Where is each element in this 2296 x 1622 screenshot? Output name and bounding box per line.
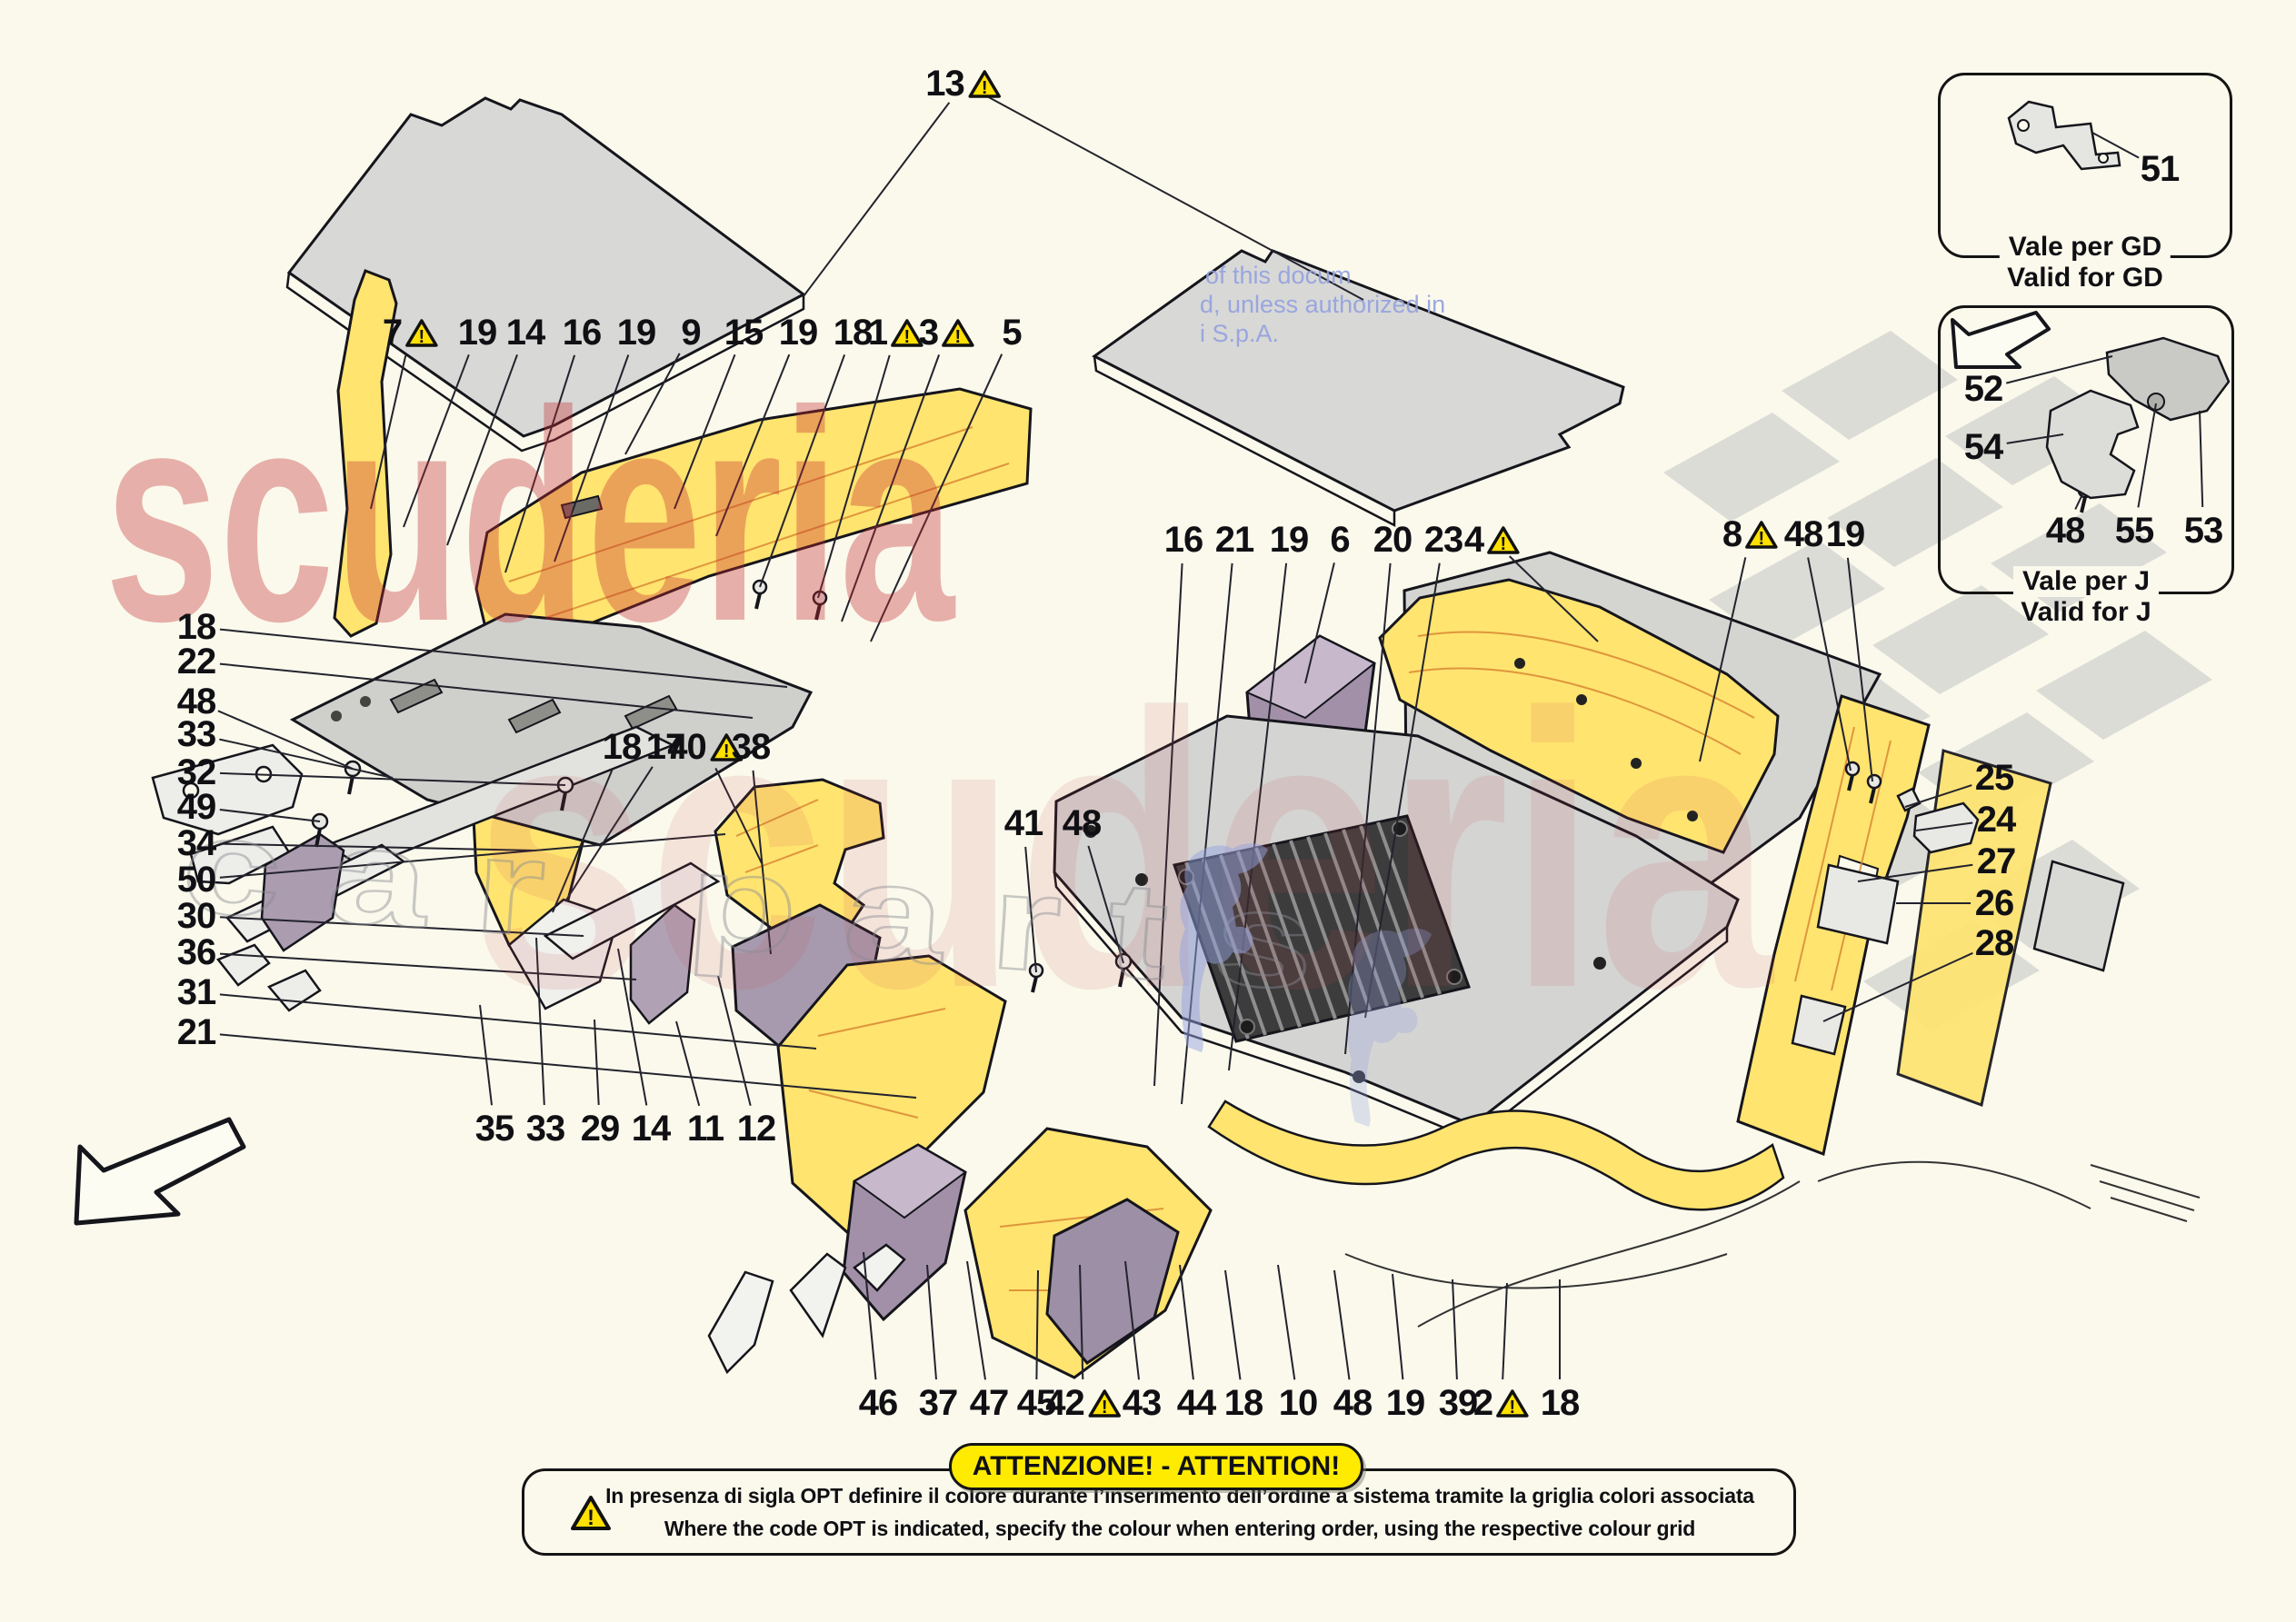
part-callout: 1! (868, 314, 924, 351)
part-callout: 18 (177, 609, 216, 645)
part-number: 33 (177, 716, 216, 752)
part-number: 48 (1063, 805, 1102, 841)
attention-badge: ATTENZIONE! - ATTENTION! (949, 1443, 1363, 1490)
part-callout: 36 (177, 934, 216, 970)
part-callout: 37 (919, 1385, 958, 1421)
warning-icon: ! (967, 69, 1002, 99)
part-callout: 42! (1045, 1385, 1122, 1421)
part-number: 43 (1123, 1385, 1162, 1421)
parts-diagram-page: scuderia scuderia car parts of this docu… (0, 0, 2296, 1622)
part-number: 8 (1722, 516, 1742, 552)
part-number: 16 (1164, 522, 1203, 558)
part-number: 32 (177, 754, 216, 791)
part-number: 36 (177, 934, 216, 970)
part-number: 19 (1826, 516, 1865, 552)
part-callout: 23 (1424, 522, 1463, 558)
part-number: 19 (1386, 1385, 1425, 1421)
callout-layer: 13!7!1914161991519181!3!5162119620234!8!… (0, 0, 2296, 1622)
warning-icon: ! (570, 1495, 612, 1531)
warning-icon: ! (1486, 525, 1521, 555)
part-number: 6 (1330, 522, 1349, 558)
part-number: 18 (177, 609, 216, 645)
warning-icon: ! (1087, 1388, 1122, 1418)
part-callout: 10 (1279, 1385, 1318, 1421)
part-number: 29 (581, 1110, 620, 1147)
part-callout: 19 (1270, 522, 1309, 558)
part-callout: 48 (2046, 512, 2085, 549)
part-number: 5 (1002, 314, 1021, 351)
part-callout: 41 (1004, 805, 1043, 841)
svg-text:!: ! (587, 1506, 594, 1530)
part-number: 19 (458, 314, 497, 351)
svg-text:!: ! (1759, 529, 1765, 549)
svg-text:!: ! (1101, 1398, 1107, 1418)
part-callout: 48 (1063, 805, 1102, 841)
part-callout: 24 (1977, 801, 2016, 838)
part-number: 14 (506, 314, 545, 351)
svg-text:!: ! (955, 327, 962, 347)
part-callout: 3! (919, 314, 975, 351)
svg-text:!: ! (1510, 1398, 1516, 1418)
part-callout: 32 (177, 754, 216, 791)
svg-text:!: ! (723, 741, 729, 761)
part-number: 18 (1541, 1385, 1580, 1421)
part-callout: 16 (1164, 522, 1203, 558)
part-number: 10 (1279, 1385, 1318, 1421)
warning-icon: ! (404, 318, 439, 348)
part-callout: 14 (506, 314, 545, 351)
part-callout: 19 (779, 314, 818, 351)
part-callout: 35 (475, 1110, 514, 1147)
part-number: 24 (1977, 801, 2016, 838)
part-callout: 39 (1439, 1385, 1478, 1421)
part-number: 28 (1975, 925, 2014, 961)
part-callout: 9 (681, 314, 700, 351)
part-number: 21 (177, 1014, 216, 1050)
part-callout: 53 (2184, 512, 2223, 549)
part-number: 44 (1177, 1385, 1216, 1421)
part-callout: 19 (1386, 1385, 1425, 1421)
part-number: 30 (177, 898, 216, 934)
part-callout: 4! (1464, 522, 1521, 558)
part-number: 16 (563, 314, 602, 351)
part-number: 35 (475, 1110, 514, 1147)
part-number: 48 (1333, 1385, 1373, 1421)
part-number: 22 (177, 643, 216, 680)
part-number: 15 (724, 314, 764, 351)
part-number: 38 (732, 729, 771, 765)
part-number: 39 (1439, 1385, 1478, 1421)
part-callout: 18 (1541, 1385, 1580, 1421)
part-callout: 25 (1975, 760, 2014, 796)
part-number: 19 (1270, 522, 1309, 558)
part-number: 34 (177, 825, 216, 861)
part-callout: 46 (859, 1385, 898, 1421)
part-number: 21 (1215, 522, 1254, 558)
part-callout: 22 (177, 643, 216, 680)
part-number: 50 (177, 861, 216, 898)
part-number: 25 (1975, 760, 2014, 796)
part-number: 47 (970, 1385, 1009, 1421)
part-callout: 43 (1123, 1385, 1162, 1421)
part-callout: 19 (458, 314, 497, 351)
warning-icon: ! (1495, 1388, 1530, 1418)
part-number: 48 (1784, 516, 1823, 552)
part-callout: 2! (1473, 1385, 1530, 1421)
part-number: 33 (526, 1110, 565, 1147)
part-number: 13 (925, 65, 964, 102)
part-number: 31 (177, 974, 216, 1010)
warning-icon: ! (1744, 520, 1779, 550)
svg-text:!: ! (981, 78, 987, 98)
warning-icon: ! (941, 318, 975, 348)
part-number: 19 (617, 314, 656, 351)
part-number: 3 (919, 314, 938, 351)
part-callout: 28 (1975, 925, 2014, 961)
part-callout: 18 (603, 729, 642, 765)
part-number: 20 (1373, 522, 1413, 558)
part-number: 11 (687, 1110, 724, 1147)
part-callout: 48 (1784, 516, 1823, 552)
part-number: 48 (2046, 512, 2085, 549)
part-callout: 33 (526, 1110, 565, 1147)
part-callout: 50 (177, 861, 216, 898)
part-callout: 47 (970, 1385, 1009, 1421)
attention-line-en: Where the code OPT is indicated, specify… (588, 1513, 1772, 1546)
part-number: 26 (1975, 885, 2014, 921)
part-number: 55 (2115, 512, 2154, 549)
part-callout: 33 (177, 716, 216, 752)
part-callout: 7! (383, 314, 439, 351)
part-number: 4 (1464, 522, 1483, 558)
part-callout: 8! (1722, 516, 1779, 552)
part-callout: 21 (1215, 522, 1254, 558)
part-number: 9 (681, 314, 700, 351)
part-callout: 44 (1177, 1385, 1216, 1421)
svg-text:!: ! (419, 327, 425, 347)
part-number: 40 (667, 729, 706, 765)
part-callout: 5 (1002, 314, 1021, 351)
svg-text:!: ! (904, 327, 911, 347)
part-callout: 6 (1330, 522, 1349, 558)
part-callout: 34 (177, 825, 216, 861)
part-number: 52 (1964, 371, 2003, 407)
part-callout: 11 (687, 1110, 724, 1147)
part-callout: 52 (1964, 371, 2003, 407)
part-callout: 55 (2115, 512, 2154, 549)
part-callout: 30 (177, 898, 216, 934)
part-number: 23 (1424, 522, 1463, 558)
part-number: 42 (1045, 1385, 1084, 1421)
part-number: 54 (1964, 429, 2003, 465)
part-callout: 48 (1333, 1385, 1373, 1421)
part-number: 27 (1977, 843, 2016, 880)
part-callout: 27 (1977, 843, 2016, 880)
part-number: 7 (383, 314, 402, 351)
part-callout: 15 (724, 314, 764, 351)
part-callout: 54 (1964, 429, 2003, 465)
part-callout: 31 (177, 974, 216, 1010)
part-number: 46 (859, 1385, 898, 1421)
part-number: 1 (868, 314, 887, 351)
part-callout: 29 (581, 1110, 620, 1147)
part-callout: 12 (737, 1110, 776, 1147)
part-callout: 49 (177, 789, 216, 825)
part-callout: 38 (732, 729, 771, 765)
part-number: 12 (737, 1110, 776, 1147)
part-number: 18 (834, 314, 873, 351)
part-callout: 51 (2141, 151, 2180, 187)
part-number: 51 (2141, 151, 2180, 187)
part-callout: 14 (632, 1110, 671, 1147)
part-callout: 13! (925, 65, 1002, 102)
part-callout: 20 (1373, 522, 1413, 558)
part-callout: 21 (177, 1014, 216, 1050)
part-callout: 18 (1224, 1385, 1263, 1421)
part-number: 41 (1004, 805, 1043, 841)
svg-text:!: ! (1501, 534, 1507, 554)
part-number: 49 (177, 789, 216, 825)
part-number: 14 (632, 1110, 671, 1147)
part-number: 2 (1473, 1385, 1492, 1421)
part-callout: 18 (834, 314, 873, 351)
part-number: 18 (1224, 1385, 1263, 1421)
part-number: 18 (603, 729, 642, 765)
part-callout: 16 (563, 314, 602, 351)
part-callout: 26 (1975, 885, 2014, 921)
part-number: 53 (2184, 512, 2223, 549)
part-number: 19 (779, 314, 818, 351)
part-callout: 19 (617, 314, 656, 351)
part-number: 37 (919, 1385, 958, 1421)
part-callout: 19 (1826, 516, 1865, 552)
